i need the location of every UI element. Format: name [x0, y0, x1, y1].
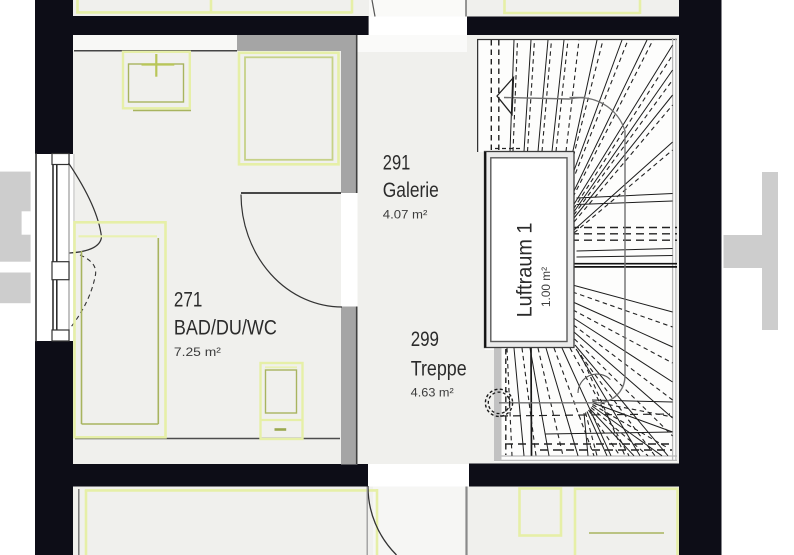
svg-text:1.00 m²: 1.00 m² — [539, 267, 553, 307]
svg-text:4.63 m²: 4.63 m² — [411, 385, 454, 399]
svg-text:7.25 m²: 7.25 m² — [174, 345, 221, 359]
svg-text:Galerie: Galerie — [383, 179, 439, 202]
svg-text:BAD/DU/WC: BAD/DU/WC — [174, 317, 277, 340]
svg-text:Luftraum 1: Luftraum 1 — [514, 223, 537, 318]
svg-text:Treppe: Treppe — [411, 358, 467, 381]
svg-text:4.07 m²: 4.07 m² — [383, 208, 428, 222]
svg-text:291: 291 — [383, 152, 411, 175]
svg-text:299: 299 — [411, 328, 439, 351]
svg-text:271: 271 — [174, 289, 202, 312]
